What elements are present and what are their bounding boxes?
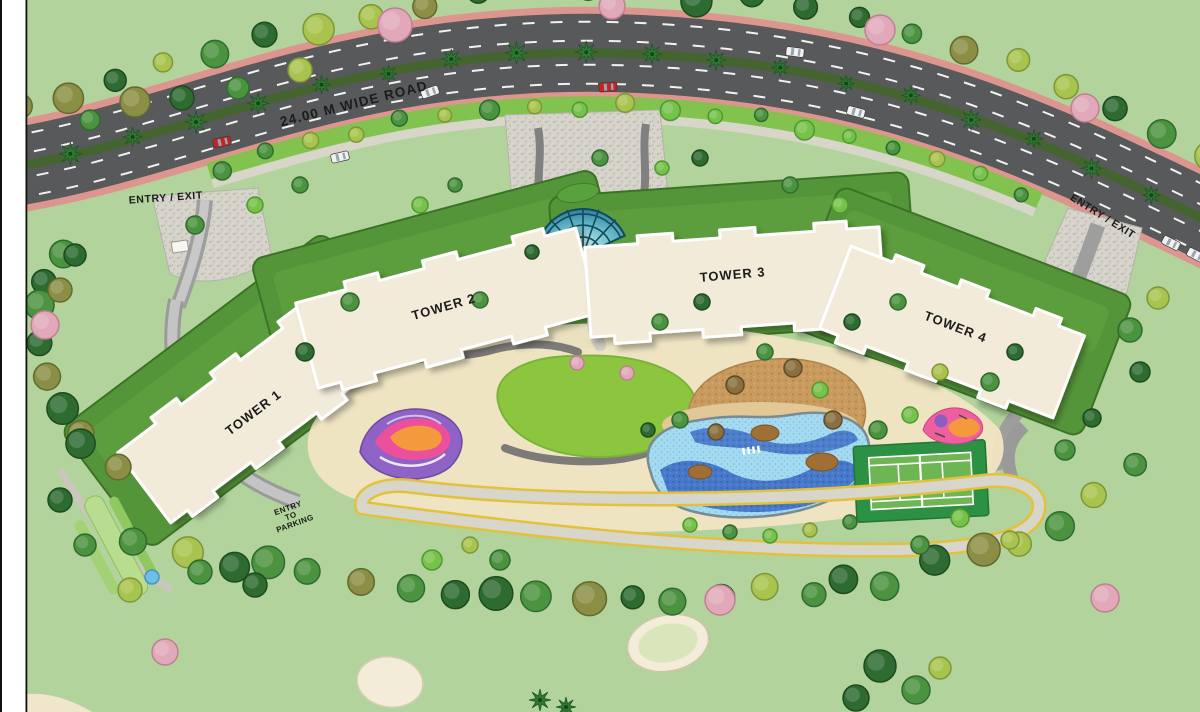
tree-icon [1148, 120, 1176, 148]
tree-icon [422, 550, 442, 570]
palm-icon [247, 92, 269, 114]
tree-icon [871, 572, 899, 600]
tree-icon [104, 69, 126, 91]
tree-icon [708, 424, 724, 440]
pool-island [751, 425, 779, 441]
car-icon [599, 82, 618, 92]
tree-icon [902, 407, 918, 423]
tree-icon [1091, 584, 1119, 612]
tree-icon [672, 412, 688, 428]
tree-icon [652, 314, 668, 330]
tree-icon [843, 515, 857, 529]
tree-icon [152, 639, 178, 665]
tree-icon [616, 94, 635, 113]
tree-icon [843, 685, 869, 711]
tree-icon [620, 366, 634, 380]
tree-icon [932, 364, 948, 380]
tree-icon [521, 581, 551, 611]
tree-icon [843, 130, 856, 143]
tree-icon [120, 87, 150, 117]
tree-icon [294, 558, 320, 584]
tree-icon [528, 100, 542, 114]
tree-icon [1007, 344, 1023, 360]
tree-icon [243, 573, 267, 597]
tree-icon [1001, 531, 1019, 549]
tree-icon [349, 127, 364, 142]
tree-icon [865, 15, 895, 45]
tree-icon [170, 86, 194, 110]
tree-icon [902, 24, 921, 43]
palm-icon [59, 142, 82, 165]
tree-icon [1081, 483, 1106, 508]
car-icon [786, 46, 805, 57]
palm-icon [961, 109, 982, 130]
tree-icon [660, 101, 680, 121]
tree-icon [812, 382, 828, 398]
tree-icon [391, 110, 407, 126]
palm-icon [380, 65, 398, 83]
palm-icon [505, 41, 528, 64]
tree-icon [227, 77, 249, 99]
tree-icon [462, 537, 478, 553]
tree-icon [890, 294, 906, 310]
palm-icon [706, 50, 727, 71]
tree-icon [378, 8, 412, 42]
tree-icon [844, 314, 860, 330]
palm-icon [575, 41, 597, 64]
tree-icon [303, 14, 334, 45]
tree-icon [480, 100, 500, 120]
tree-icon [592, 150, 608, 166]
tree-icon [751, 573, 777, 599]
palm-icon [771, 58, 789, 76]
tree-icon [1055, 440, 1075, 460]
tree-icon [48, 278, 72, 302]
tree-icon [1071, 94, 1099, 122]
tree-icon [599, 0, 625, 19]
tree-icon [74, 534, 96, 556]
tree-icon [726, 376, 744, 394]
tree-icon [80, 110, 100, 130]
tree-icon [723, 525, 737, 539]
palm-icon [441, 49, 461, 69]
tree-icon [929, 657, 951, 679]
tree-icon [31, 311, 59, 339]
palm-icon [1025, 129, 1044, 148]
palm-icon [901, 86, 920, 105]
tree-icon [258, 143, 274, 159]
tree-icon [784, 359, 802, 377]
tree-icon [967, 533, 1000, 566]
tree-icon [296, 343, 314, 361]
tree-icon [886, 141, 900, 155]
tree-icon [763, 529, 777, 543]
tree-icon [448, 178, 462, 192]
tree-icon [708, 109, 722, 123]
tree-icon [118, 578, 142, 602]
tree-icon [824, 411, 842, 429]
tree-icon [929, 151, 944, 166]
tree-icon [288, 58, 312, 82]
tree-icon [705, 585, 735, 615]
tree-icon [247, 197, 263, 213]
tree-icon [490, 550, 510, 570]
tree-icon [981, 373, 999, 391]
tree-icon [119, 528, 146, 555]
palm-icon [312, 75, 331, 94]
palm-icon [529, 689, 551, 711]
tree-icon [53, 83, 83, 113]
tree-icon [757, 344, 773, 360]
tree-icon [683, 518, 697, 532]
tree-icon [252, 22, 277, 47]
palm-icon [838, 75, 855, 92]
site-plan-canvas: 24.00 M WIDE ROAD ENTRY / EXIT ENTRY / E… [0, 0, 1200, 712]
tree-icon [64, 244, 86, 266]
palm-icon [1081, 158, 1103, 180]
tree-icon [973, 166, 987, 180]
tree-icon [950, 36, 978, 64]
tree-icon [34, 363, 61, 390]
tree-icon [292, 177, 308, 193]
tree-icon [829, 565, 857, 593]
tree-icon [201, 40, 228, 67]
tree-icon [479, 577, 513, 611]
tree-icon [802, 583, 826, 607]
guard-house [171, 240, 188, 253]
tree-icon [832, 197, 848, 213]
tree-icon [47, 393, 78, 424]
tree-icon [869, 421, 887, 439]
tree-icon [66, 429, 95, 458]
tree-icon [782, 177, 798, 193]
site-plan: 24.00 M WIDE ROAD ENTRY / EXIT ENTRY / E… [0, 0, 1200, 712]
tree-icon [572, 102, 587, 117]
tree-icon [413, 0, 437, 18]
tree-icon [911, 536, 929, 554]
tree-icon [1046, 512, 1075, 541]
tree-icon [659, 588, 686, 615]
palm-icon [642, 44, 663, 65]
tree-icon [441, 581, 469, 609]
tree-icon [188, 560, 212, 584]
tree-icon [1103, 97, 1127, 121]
tree-icon [803, 523, 817, 537]
palm-icon [123, 127, 143, 147]
tree-icon [692, 150, 708, 166]
left-margin [0, 0, 27, 712]
tree-icon [951, 509, 969, 527]
tree-icon [1118, 318, 1142, 342]
tree-icon [573, 582, 607, 616]
palm-icon [185, 111, 208, 134]
tree-icon [795, 120, 815, 140]
tree-icon [48, 488, 72, 512]
tree-icon [694, 294, 710, 310]
tree-icon [655, 161, 669, 175]
tree-icon [621, 586, 644, 609]
tree-icon [1083, 409, 1101, 427]
tree-icon [902, 676, 930, 704]
tree-icon [438, 108, 452, 122]
tree-icon [302, 132, 318, 148]
tree-icon [341, 293, 359, 311]
tree-icon [186, 216, 204, 234]
tree-icon [153, 53, 172, 72]
tree-icon [1124, 453, 1146, 475]
pool-island [806, 453, 838, 471]
tree-icon [105, 454, 131, 480]
pool-island [688, 465, 712, 479]
tree-icon [1007, 49, 1030, 72]
tree-icon [1054, 75, 1078, 99]
tree-icon [348, 569, 375, 596]
tree-icon [864, 650, 896, 682]
small-pond [145, 570, 159, 584]
tree-icon [794, 0, 818, 19]
tree-icon [412, 197, 428, 213]
tree-icon [525, 245, 539, 259]
tree-icon [1147, 287, 1169, 309]
tree-icon [1014, 188, 1028, 202]
palm-icon [1142, 186, 1161, 205]
tree-icon [641, 423, 655, 437]
tree-icon [755, 108, 768, 121]
tree-icon [570, 356, 584, 370]
tree-icon [213, 162, 231, 180]
tree-icon [1130, 362, 1150, 382]
tree-icon [397, 575, 424, 602]
